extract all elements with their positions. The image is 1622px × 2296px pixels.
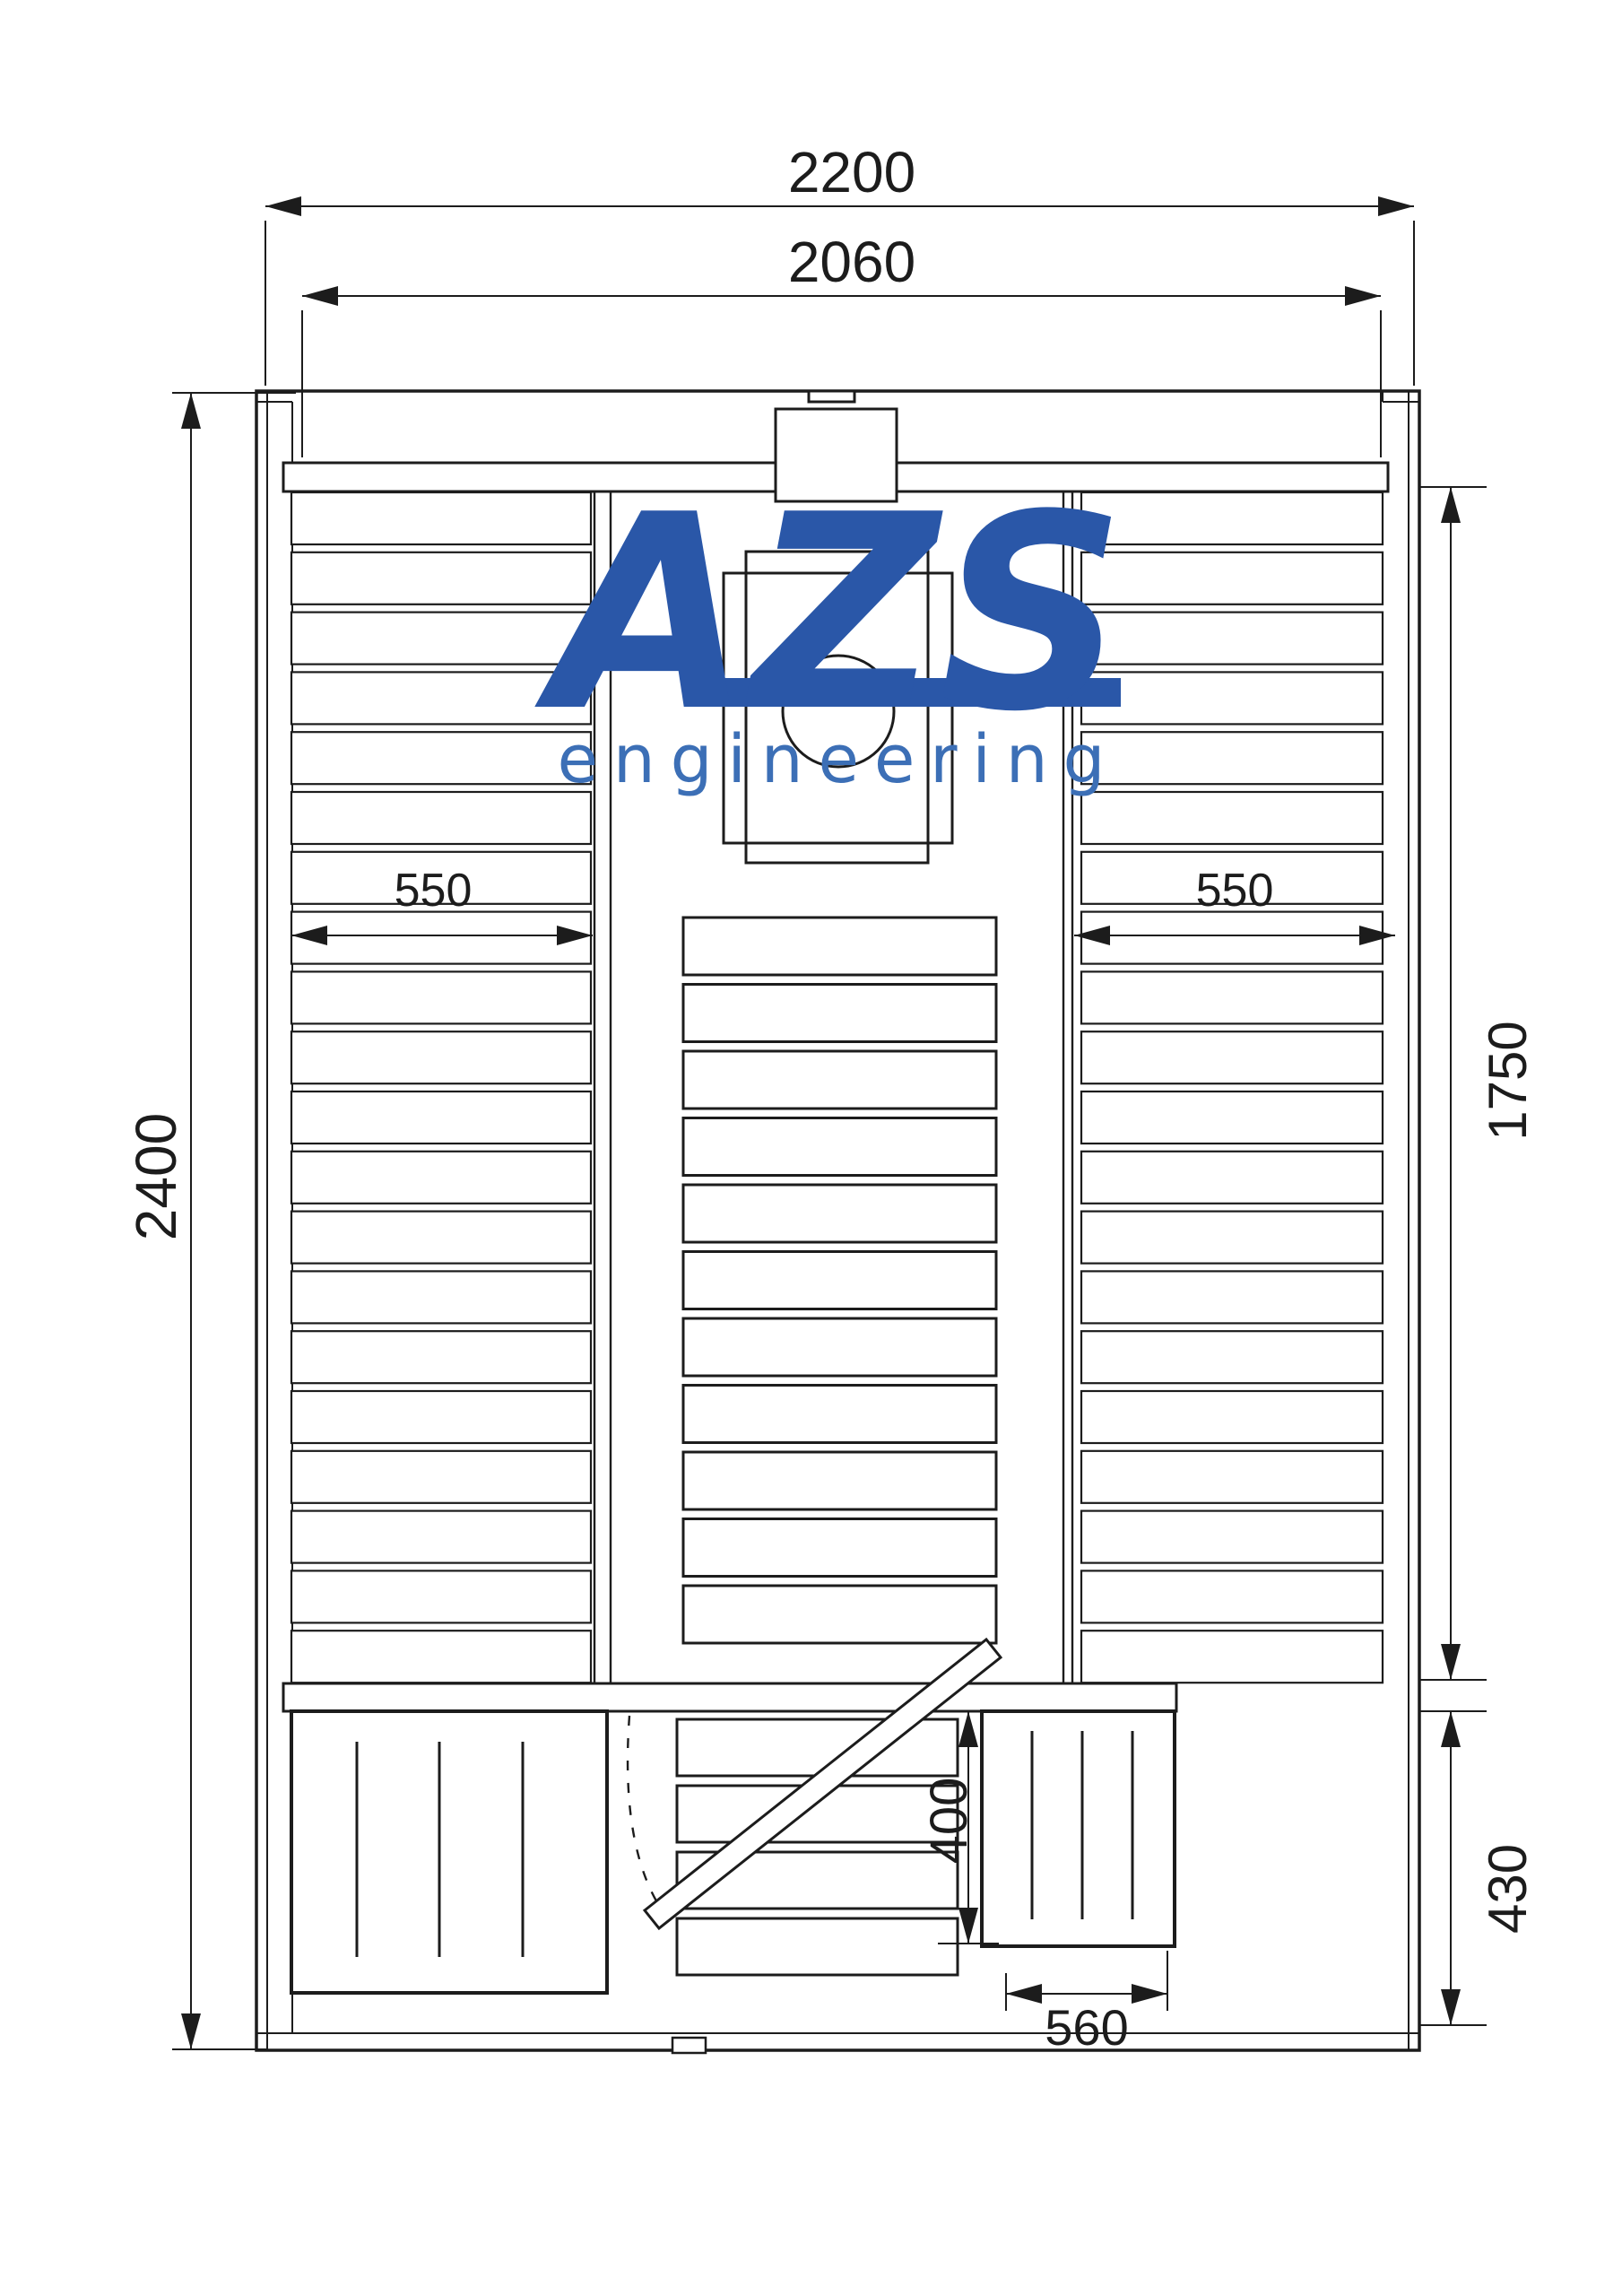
arrowhead — [1006, 1984, 1042, 2004]
bench-slat — [291, 1031, 591, 1083]
entrance-floor-board — [677, 1918, 958, 1975]
azs-logo: AZS engineering — [531, 457, 1125, 798]
floor-plan-drawing: 2200 2060 2400 550 550 1750 — [0, 0, 1622, 2296]
bench-slat — [291, 552, 591, 604]
bench-slat — [291, 792, 591, 844]
bench-slat — [1081, 1091, 1383, 1144]
bench-slat — [1081, 1212, 1383, 1264]
dim-label-left-bench-width: 550 — [395, 865, 473, 917]
arrowhead — [265, 196, 301, 216]
arrowhead — [181, 393, 201, 429]
dim-label-overall-width: 2200 — [788, 140, 915, 204]
bench-slat — [1081, 552, 1383, 604]
dim-label-entrance-depth: 430 — [1478, 1844, 1538, 1934]
dim-label-right-bench-width: 550 — [1196, 865, 1274, 917]
bench-slat — [291, 1451, 591, 1503]
logo-subtitle-text: engineering — [558, 721, 1116, 798]
bench-slat — [291, 672, 591, 724]
arrowhead — [1441, 487, 1461, 523]
bench-slat — [291, 613, 591, 665]
bench-slat — [1081, 1570, 1383, 1622]
floor-board — [683, 985, 996, 1042]
bench-slat — [1081, 1031, 1383, 1083]
floor-board — [683, 1519, 996, 1577]
bench-slat — [1081, 971, 1383, 1023]
arrowhead — [1441, 1711, 1461, 1747]
floor-board — [683, 1318, 996, 1376]
left-deck-panel — [291, 1711, 607, 1993]
bench-slat — [1081, 912, 1383, 964]
floor-board — [683, 1386, 996, 1443]
bench-slat — [1081, 672, 1383, 724]
bench-slat — [1081, 1451, 1383, 1503]
bench-slat — [1081, 1331, 1383, 1383]
left-bench-slats — [291, 492, 591, 1683]
floor-board — [683, 1118, 996, 1176]
arrowhead — [958, 1908, 978, 1944]
bench-slat — [291, 971, 591, 1023]
arrowhead — [1441, 1989, 1461, 2025]
bench-slat — [1081, 492, 1383, 544]
floor-board — [683, 1586, 996, 1643]
center-floor-boards — [683, 918, 996, 1643]
floor-board — [683, 1452, 996, 1509]
dim-label-bench-length: 1750 — [1478, 1021, 1538, 1140]
vent-rect — [809, 391, 854, 402]
arrowhead — [1378, 196, 1414, 216]
entrance-floor-boards — [677, 1719, 958, 1975]
floor-board — [683, 1252, 996, 1309]
bench-slat — [291, 1152, 591, 1204]
bench-slat — [291, 732, 591, 784]
bench-slat — [1081, 1391, 1383, 1443]
arrowhead — [1441, 1644, 1461, 1680]
arrowhead — [302, 286, 338, 306]
dim-label-overall-depth: 2400 — [124, 1113, 188, 1240]
bench-slat — [291, 1631, 591, 1683]
arrowhead — [1132, 1984, 1167, 2004]
bench-slat — [291, 1091, 591, 1144]
floor-board — [683, 1051, 996, 1109]
entrance-floor-board — [677, 1719, 958, 1776]
bench-slat — [291, 1570, 591, 1622]
dim-label-door-width: 560 — [1045, 1999, 1128, 2056]
door-threshold-detail — [672, 2038, 706, 2053]
arrowhead — [958, 1711, 978, 1747]
arrowhead — [181, 2013, 201, 2049]
bench-slat — [291, 1391, 591, 1443]
bench-slat — [1081, 613, 1383, 665]
right-bench-slats — [1081, 492, 1383, 1683]
right-deck — [982, 1711, 1175, 1946]
bench-slat — [1081, 1511, 1383, 1563]
bench-slat — [1081, 792, 1383, 844]
arrowhead — [1345, 286, 1381, 306]
dim-label-door-opening-depth: 400 — [920, 1778, 978, 1865]
bench-slat — [291, 492, 591, 544]
right-deck-panel — [982, 1711, 1175, 1946]
bench-slat — [291, 912, 591, 964]
bench-slat — [291, 1511, 591, 1563]
bench-slat — [1081, 1631, 1383, 1683]
bench-slat — [1081, 1271, 1383, 1323]
bench-slat — [291, 1331, 591, 1383]
left-deck — [291, 1711, 607, 1993]
bench-slat — [291, 1212, 591, 1264]
dim-label-inner-width: 2060 — [788, 230, 915, 294]
bench-slat — [1081, 732, 1383, 784]
bench-slat — [1081, 1152, 1383, 1204]
bench-slat — [291, 1271, 591, 1323]
floor-board — [683, 1185, 996, 1242]
bottom-rail-beam — [283, 1683, 1176, 1711]
floor-board — [683, 918, 996, 975]
